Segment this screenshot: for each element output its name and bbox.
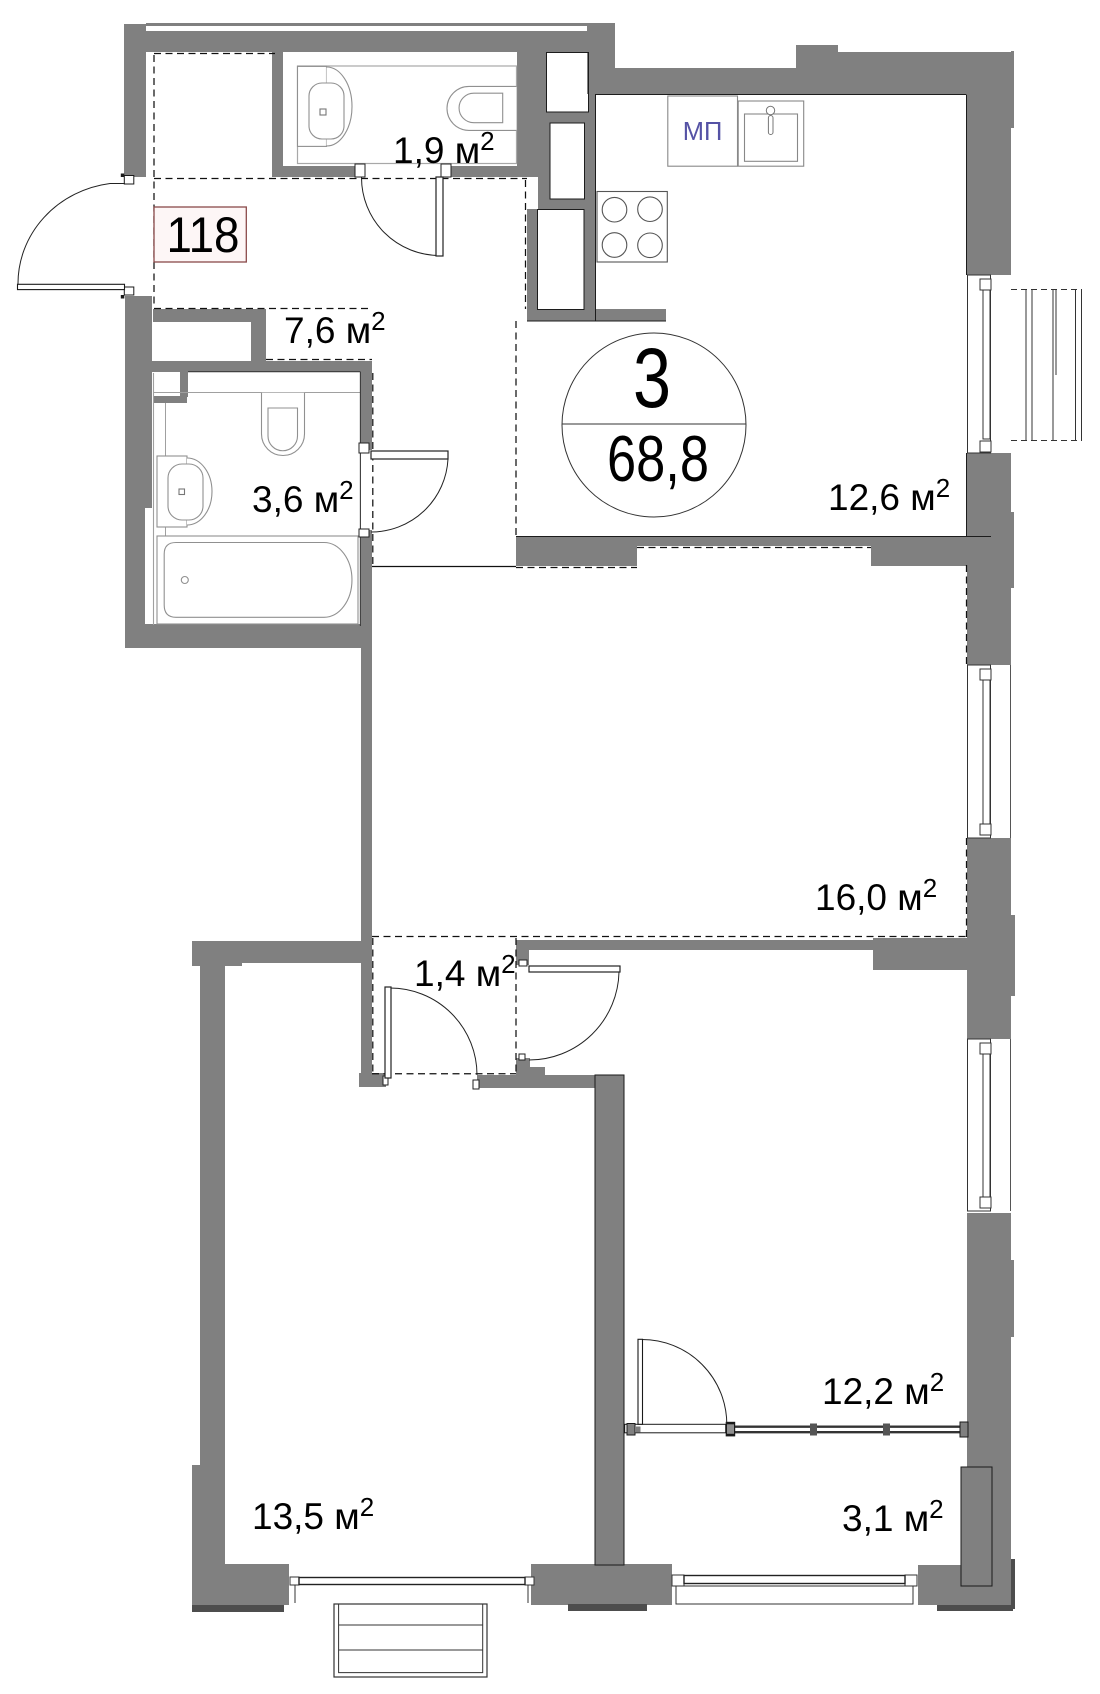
svg-text:12,6 м2: 12,6 м2 xyxy=(828,473,950,518)
svg-text:3,6 м2: 3,6 м2 xyxy=(252,475,354,520)
svg-text:7,6 м2: 7,6 м2 xyxy=(284,306,386,351)
svg-text:16,0 м2: 16,0 м2 xyxy=(815,873,937,918)
svg-text:13,5 м2: 13,5 м2 xyxy=(252,1492,374,1537)
svg-text:МП: МП xyxy=(683,118,723,146)
svg-text:1,4 м2: 1,4 м2 xyxy=(414,949,516,994)
svg-text:1,9 м2: 1,9 м2 xyxy=(393,126,495,171)
svg-text:118: 118 xyxy=(167,207,240,263)
svg-text:12,2 м2: 12,2 м2 xyxy=(822,1367,944,1412)
svg-text:68,8: 68,8 xyxy=(607,422,709,495)
svg-text:3: 3 xyxy=(633,331,671,425)
svg-text:3,1 м2: 3,1 м2 xyxy=(842,1494,944,1539)
